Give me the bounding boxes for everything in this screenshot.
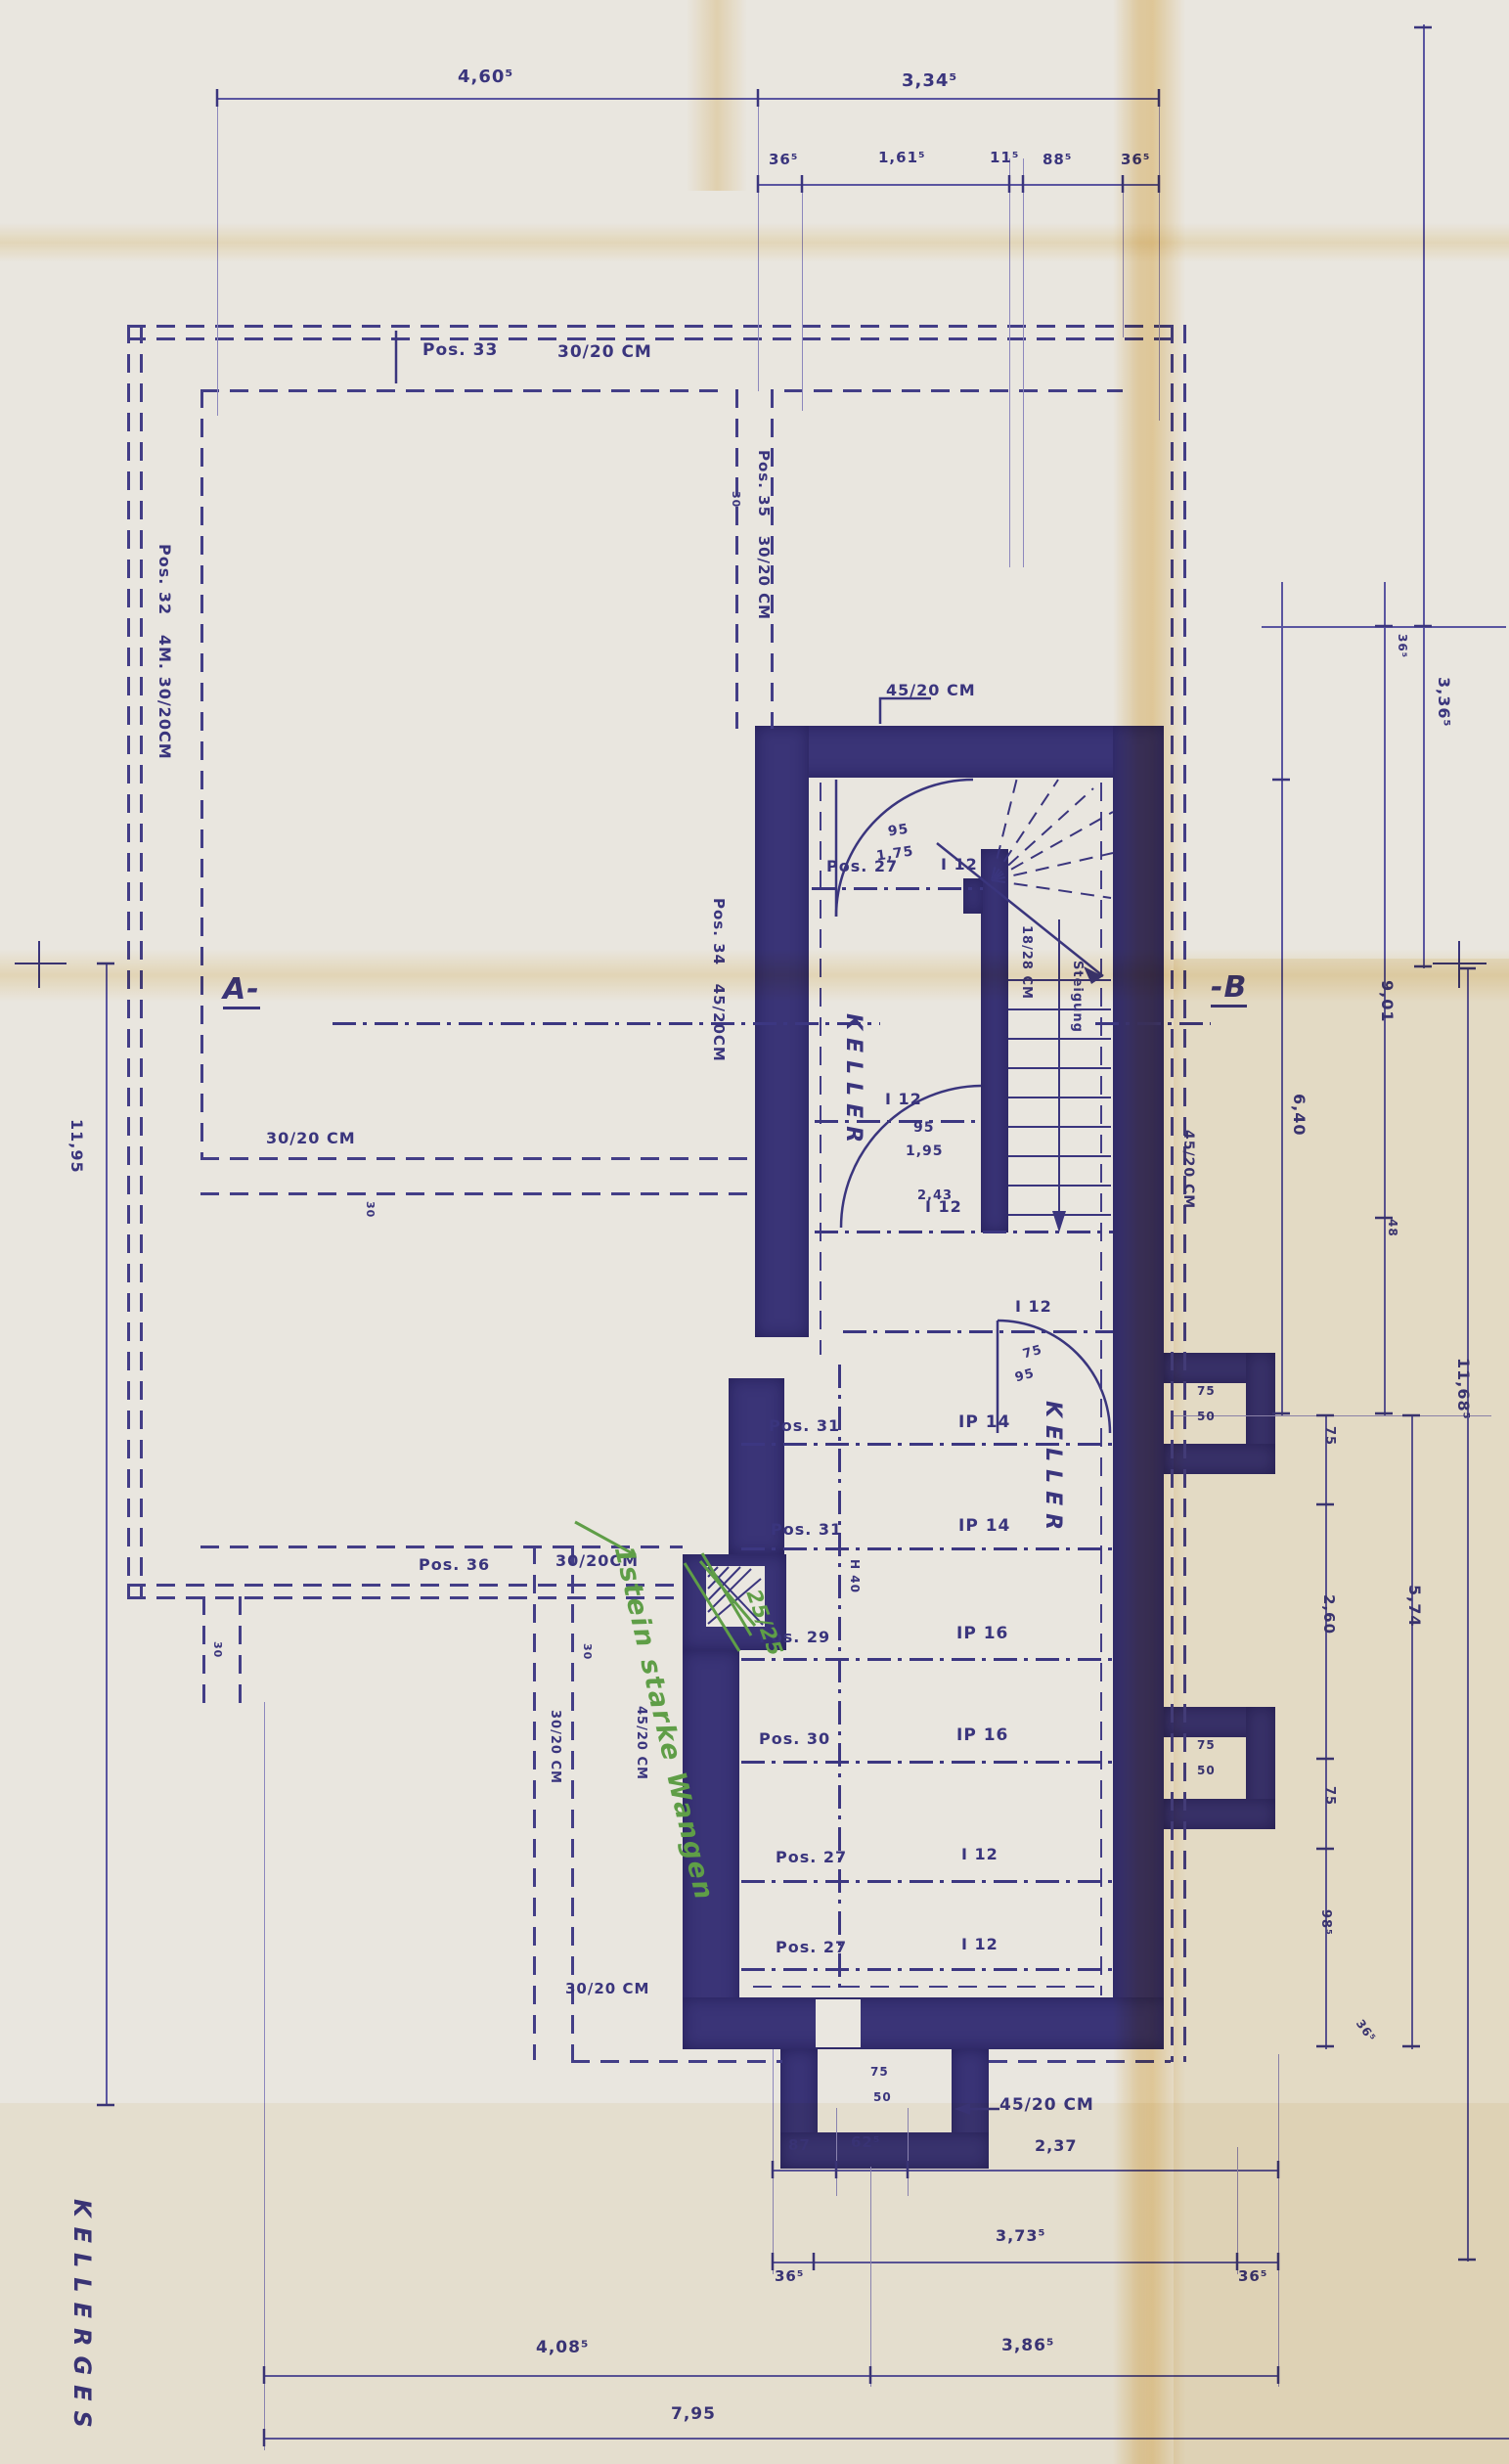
beam-label: IP 16	[956, 1626, 1008, 1643]
dim-label: 3,86⁵	[1001, 2338, 1054, 2355]
pos-label-vertical: Pos. 34 45/20CM	[710, 898, 726, 1062]
dim-label-vertical: 2,60	[1320, 1594, 1336, 1635]
pos-label: Pos. 33	[422, 342, 498, 360]
tick-label-30: 30	[730, 491, 741, 508]
dim-label: 62⁵	[851, 2135, 880, 2151]
dimension-ticks	[97, 27, 1476, 2446]
dim-label-vertical: 9,01	[1378, 980, 1395, 1022]
beam-label: I 12	[961, 1847, 999, 1863]
shaft-size: 75	[1197, 1739, 1216, 1752]
dim-label: 2,43	[917, 1189, 953, 1203]
dim-label: 3,73⁵	[996, 2228, 1045, 2245]
wall-size-label: 30/20 CM	[266, 1131, 356, 1147]
beam-label: IP 16	[956, 1727, 1008, 1745]
room-label-keller: KELLER	[842, 1013, 865, 1150]
door-size: 95	[887, 823, 910, 840]
wall-size-label: 30/20 CM	[565, 1982, 649, 1997]
beam-label: I 12	[961, 1937, 999, 1953]
beam-label: I 12	[941, 857, 978, 874]
room-label-keller: KELLER	[1042, 1401, 1064, 1538]
dim-label-vertical: 5,74	[1405, 1585, 1422, 1627]
stair-riser-label: 18/28 CM	[1019, 925, 1033, 1000]
shaft-size: 50	[873, 2091, 892, 2104]
dim-label: 3,34⁵	[902, 72, 957, 91]
pos-label: Pos. 31	[771, 1522, 842, 1539]
dim-label: 36⁵	[1238, 2269, 1267, 2285]
section-marker-a: A-	[223, 974, 260, 1009]
dim-label: 7,95	[671, 2406, 716, 2424]
tick-label-30: 30	[211, 1641, 223, 1658]
dim-label: 88⁵	[1043, 153, 1072, 168]
beam-label: IP 14	[958, 1414, 1010, 1432]
blueprint-sheet: 4,60⁵ 3,34⁵ 36⁵ 1,61⁵ 11⁵ 88⁵ 36⁵ Pos. 3…	[0, 0, 1509, 2464]
wall-size-label: 30/20 CM	[557, 344, 652, 362]
dim-label: 4,60⁵	[458, 68, 513, 87]
dim-label: 36⁵	[1121, 153, 1150, 168]
shaft-size: 50	[1197, 1765, 1216, 1777]
door-size: 1,95	[906, 1144, 944, 1159]
tick-label-30: 30	[364, 1201, 376, 1218]
dim-label: 36⁵	[775, 2269, 804, 2285]
tick-label-30: 30	[581, 1643, 593, 1660]
wall-size-label: 45/20 CM	[886, 683, 976, 699]
dim-label-vertical: 48	[1386, 1219, 1398, 1237]
beam-label: I 12	[1015, 1299, 1052, 1316]
dim-label-vertical: 6,40	[1290, 1094, 1307, 1136]
pos-label: Pos. 27	[776, 1850, 847, 1866]
door-size: 95	[913, 1121, 934, 1136]
shaft-size: 50	[1197, 1411, 1216, 1423]
green-marks	[575, 1522, 755, 1651]
pos-label-vertical: Pos. 35 30/20 CM	[755, 450, 771, 620]
shaft-size: 75	[1197, 1385, 1216, 1398]
pos-label: Pos. 36	[419, 1557, 490, 1574]
pos-label-vertical: Pos. 32 4M. 30/20CM	[155, 544, 172, 760]
dim-label-vertical: 11,95	[67, 1119, 84, 1174]
dim-label: 36⁵	[769, 153, 798, 168]
stair-steigung-label: Steigung	[1070, 961, 1084, 1033]
wall-size-label-vertical: 45/20 CM	[634, 1706, 647, 1780]
dim-label: 1,61⁵	[878, 151, 926, 166]
sheet-side-title: KELLERGES	[69, 2199, 94, 2438]
dim-label-vertical: 75	[1322, 1426, 1336, 1446]
pos-label: Pos. 27	[776, 1940, 847, 1956]
door-arcs	[836, 780, 1110, 1433]
dim-label-vertical: 98⁵	[1318, 1909, 1332, 1936]
dim-label-vertical: 36⁵	[1396, 634, 1408, 658]
pos-label: Pos. 31	[769, 1418, 840, 1435]
plan-linework	[0, 0, 1509, 2464]
dim-label-vertical: 75	[1322, 1786, 1336, 1806]
beam-label: IP 14	[958, 1518, 1010, 1536]
section-marker-b: -B	[1211, 972, 1247, 1008]
dim-label: 4,08⁵	[536, 2340, 589, 2357]
dim-label: 11⁵	[990, 151, 1019, 166]
wall-size-label-vertical: 30/20 CM	[548, 1710, 561, 1784]
wall-size-label: 45/20 CM	[999, 2097, 1094, 2115]
dim-label-vertical: 3,36⁵	[1435, 677, 1451, 727]
height-label: H 40	[848, 1559, 861, 1593]
stair-winder-fan	[992, 778, 1113, 898]
pos-label: Pos. 30	[759, 1731, 830, 1748]
wall-size-label-vertical: 45/20 CM	[1180, 1130, 1195, 1209]
dim-label: 87	[788, 2138, 811, 2154]
shaft-size: 75	[870, 2066, 889, 2079]
dim-label: 2,37	[1035, 2138, 1077, 2155]
label-leaders	[880, 698, 999, 2115]
beam-label: I 12	[885, 1092, 922, 1108]
dim-label-vertical: 11,68⁵	[1454, 1358, 1471, 1420]
